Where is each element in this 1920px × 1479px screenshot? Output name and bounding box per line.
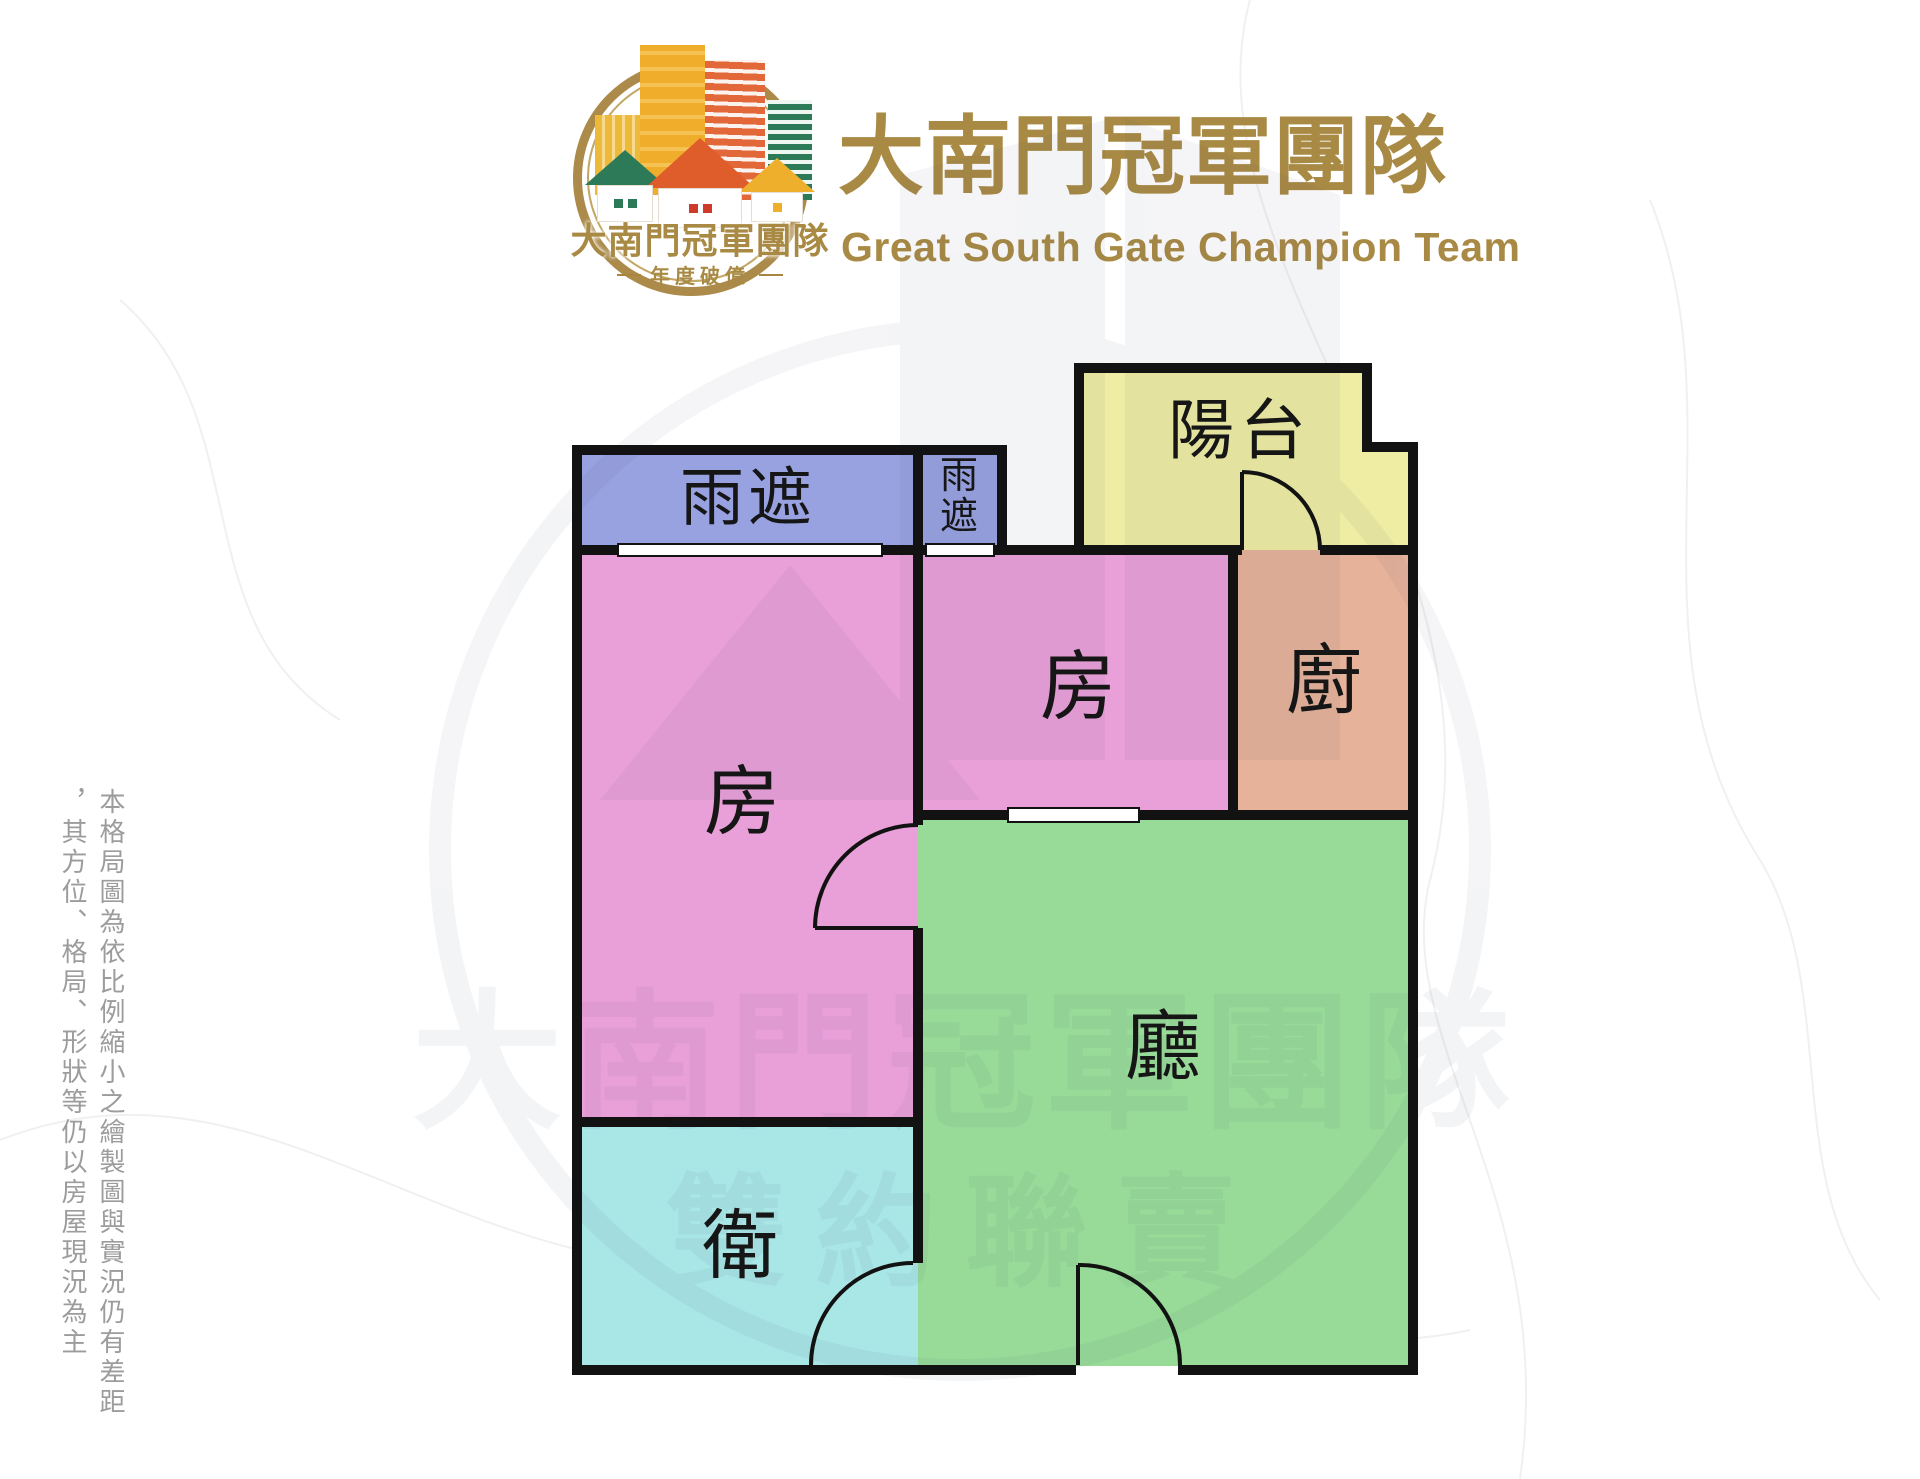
wall (1408, 442, 1418, 1375)
house-roof-icon (739, 158, 815, 192)
label-bedroom-left: 房 (704, 765, 780, 841)
wall (1074, 363, 1084, 555)
page-subtitle: Great South Gate Champion Team (841, 224, 1520, 271)
room-balcony (1367, 447, 1413, 550)
label-bedroom-middle: 房 (1040, 650, 1116, 726)
house-window-icon (628, 199, 637, 208)
emblem-team-name: 大南門冠軍團隊 (565, 212, 835, 264)
wall (1362, 363, 1372, 452)
page: 大南門冠軍團隊 年度破億 大南門冠軍團隊 Great South Gate Ch… (0, 0, 1920, 1479)
wall (572, 445, 582, 1375)
tagline-divider (617, 274, 641, 276)
room-living (918, 815, 1413, 1366)
wall (572, 445, 1007, 455)
wall (1320, 545, 1418, 555)
emblem-tagline-row: 年度破億 (565, 260, 835, 289)
disclaimer-column-1: 本格局圖為依比例縮小之繪製圖與實況仍有差距 (92, 788, 130, 1428)
wall (997, 445, 1007, 555)
label-living: 廳 (1125, 1010, 1201, 1086)
wall (913, 928, 923, 1263)
wall (572, 1117, 923, 1127)
label-balcony: 陽台 (1168, 397, 1312, 463)
house-window-icon (773, 203, 782, 212)
wall (913, 810, 1418, 820)
disclaimer-column-2: ，其方位、格局、形狀等仍以房屋現況為主 (54, 788, 92, 1428)
label-bathroom: 衛 (702, 1209, 778, 1285)
house-window-icon (614, 199, 623, 208)
label-canopy-small: 雨遮 (937, 456, 981, 538)
wall (1228, 555, 1238, 820)
tagline-divider (759, 274, 783, 276)
team-logo-emblem: 大南門冠軍團隊 年度破億 (565, 30, 835, 310)
wall (1178, 1365, 1418, 1375)
label-kitchen: 廚 (1286, 644, 1362, 720)
emblem-tagline: 年度破億 (650, 260, 750, 289)
window (1007, 807, 1140, 823)
wall (572, 1365, 1076, 1375)
label-canopy-large: 雨遮 (680, 466, 816, 530)
page-title: 大南門冠軍團隊 (838, 110, 1447, 205)
disclaimer-text: 本格局圖為依比例縮小之繪製圖與實況仍有差距 ，其方位、格局、形狀等仍以房屋現況為… (50, 788, 130, 1428)
wall (913, 445, 923, 825)
wall (1074, 363, 1372, 373)
window (925, 543, 995, 557)
window (617, 543, 883, 557)
